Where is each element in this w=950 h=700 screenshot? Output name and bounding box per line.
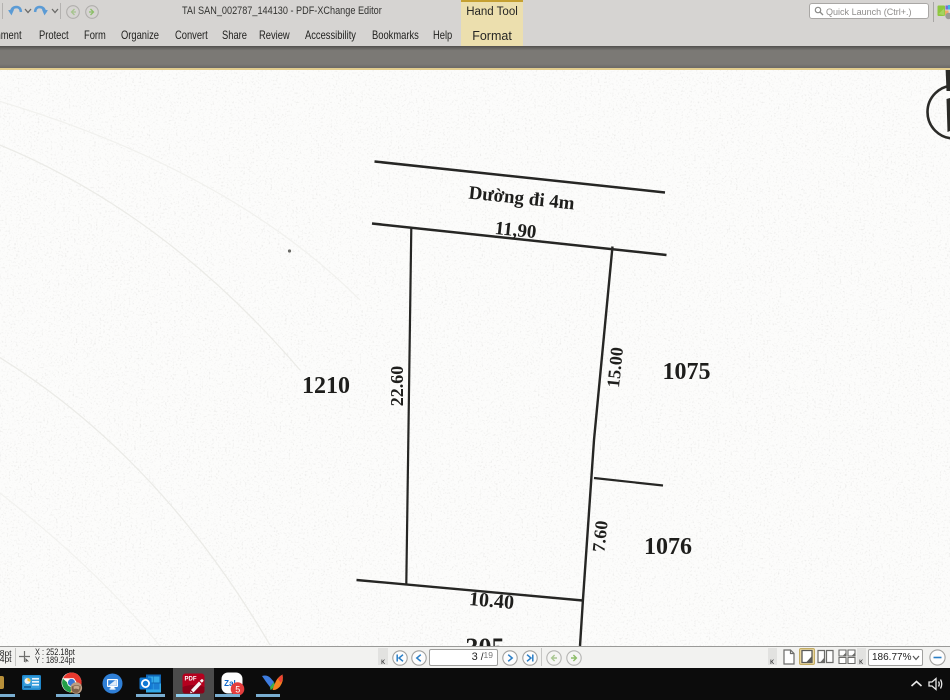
svg-text:10.40: 10.40	[468, 588, 515, 614]
svg-text:15.00: 15.00	[603, 346, 627, 388]
svg-text:1076: 1076	[644, 534, 692, 560]
svg-text:22.60: 22.60	[387, 366, 407, 407]
svg-text:7.60: 7.60	[588, 520, 611, 553]
svg-text:1210: 1210	[302, 373, 350, 399]
svg-text:PDF: PDF	[185, 677, 197, 683]
svg-text:1075: 1075	[663, 359, 711, 385]
svg-text:11,90: 11,90	[494, 218, 538, 243]
